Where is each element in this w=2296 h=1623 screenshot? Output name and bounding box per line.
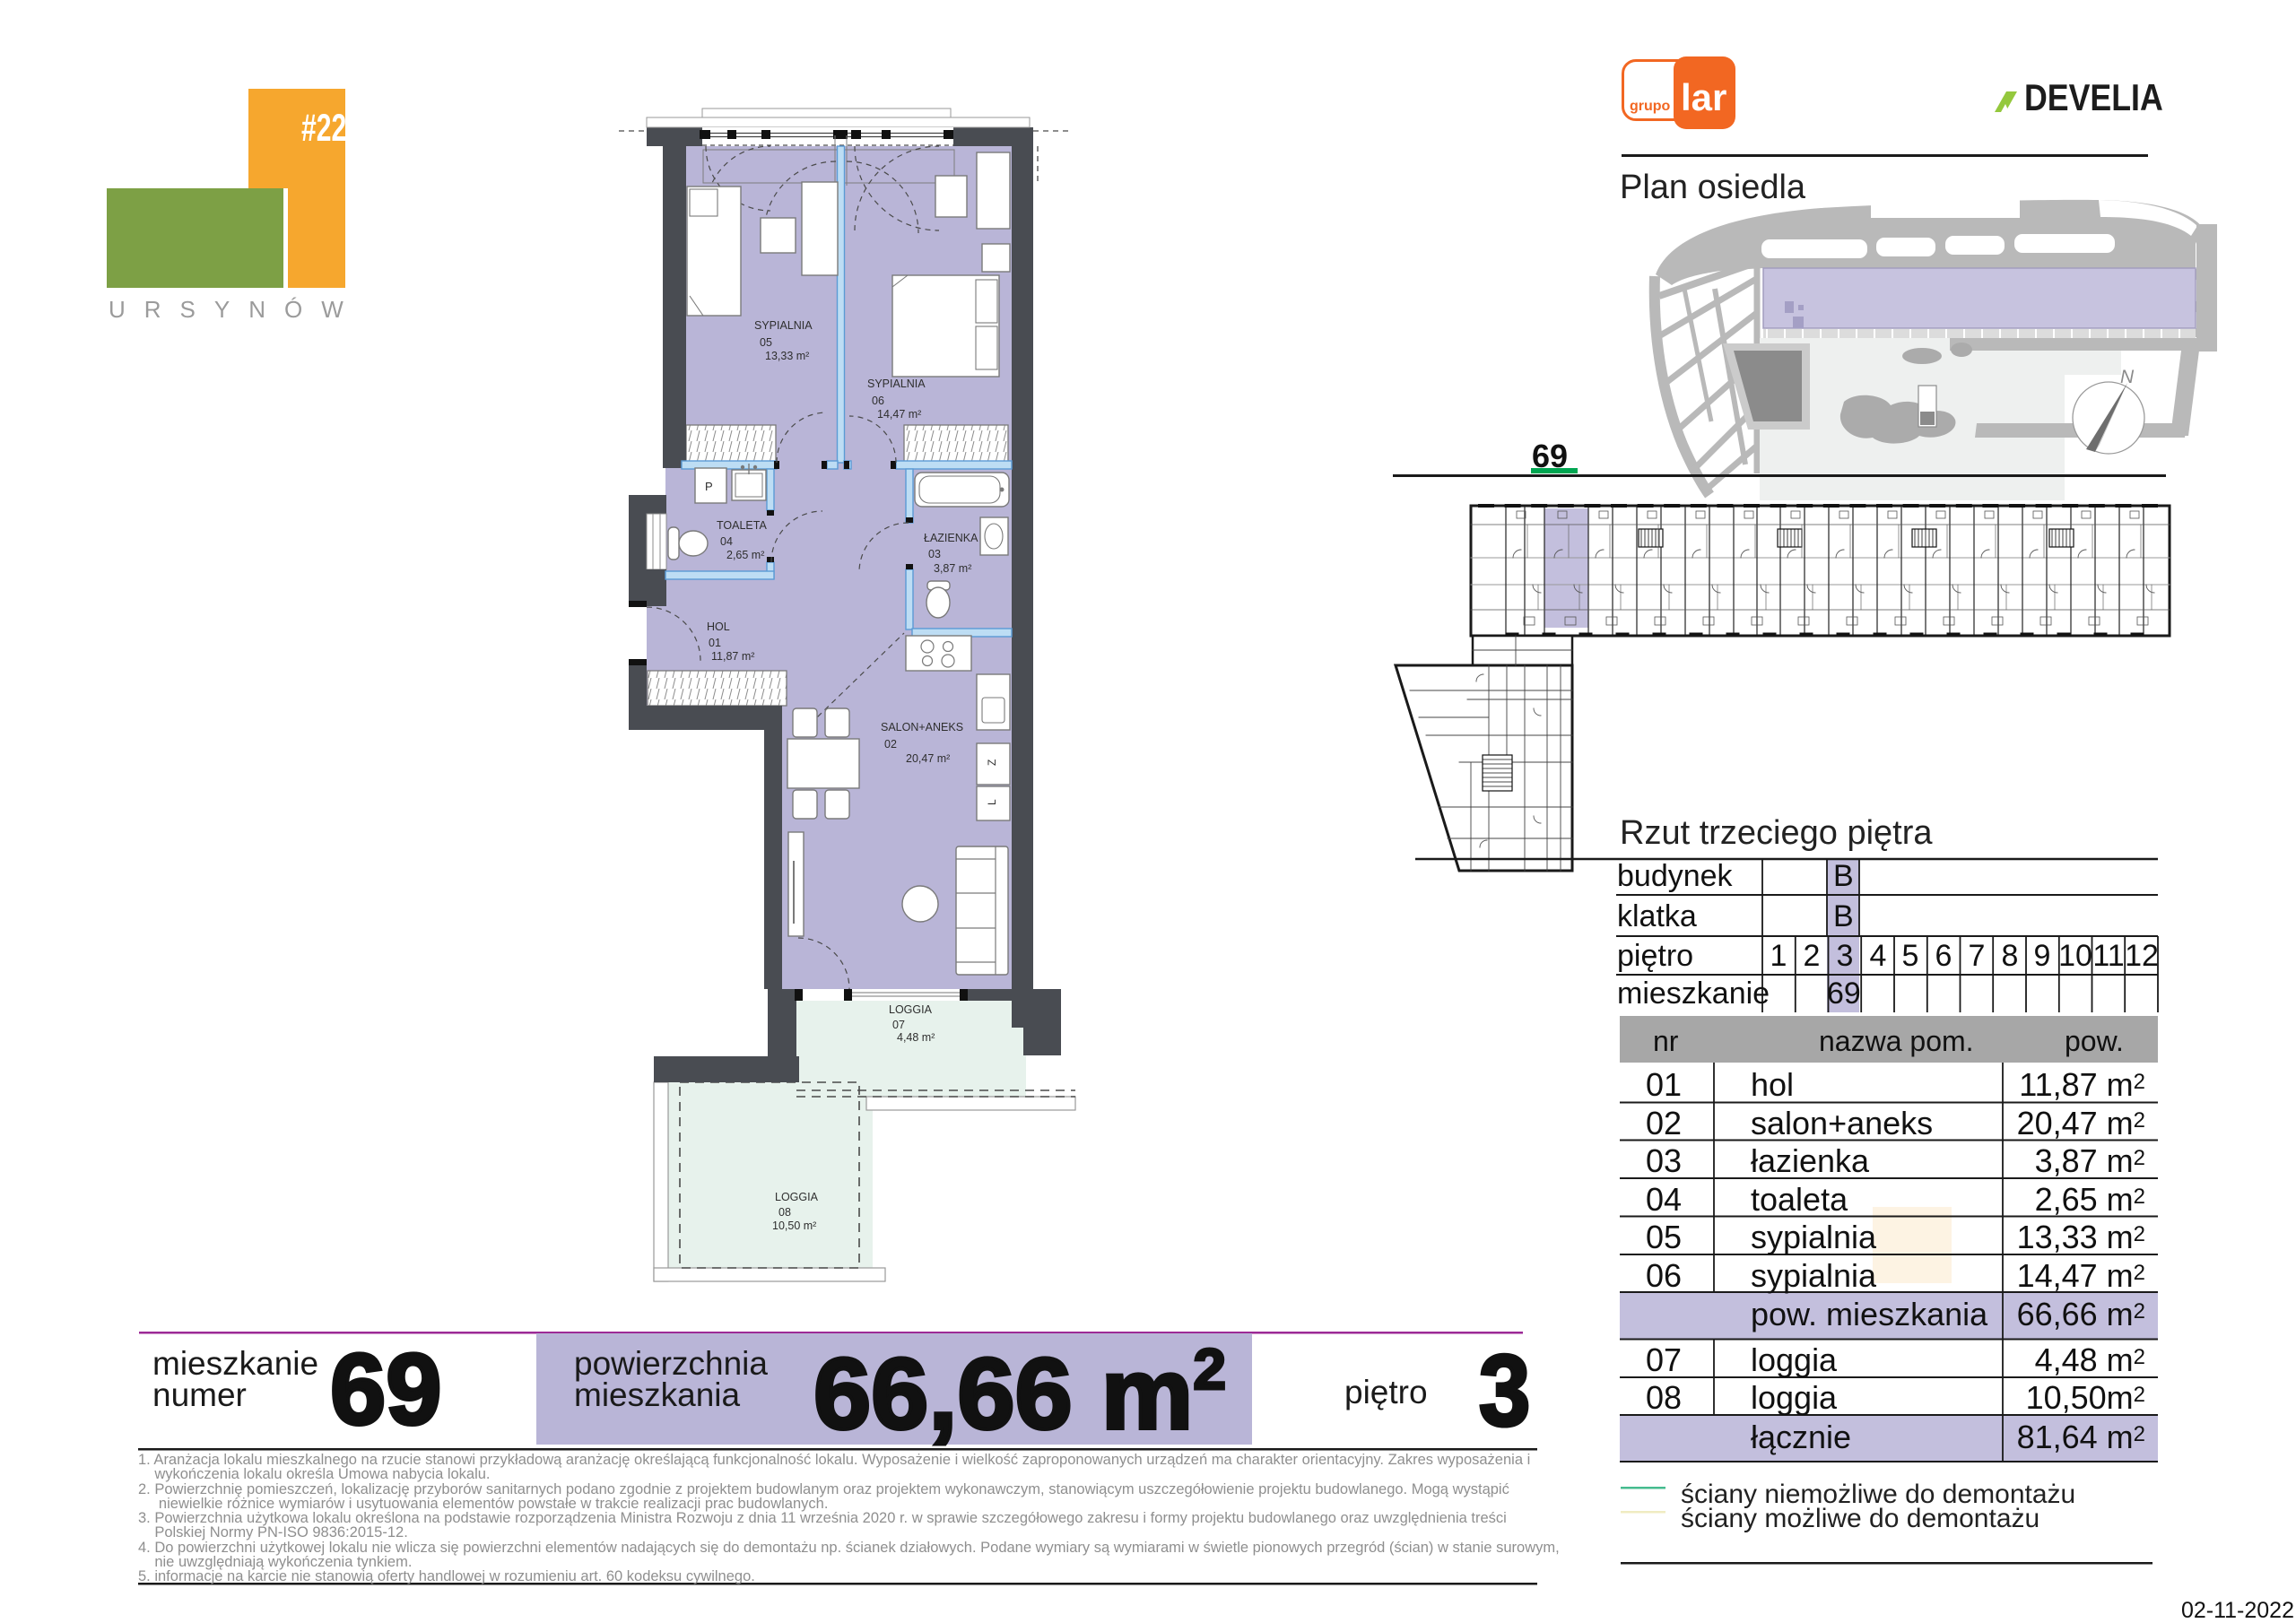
- svg-text:03: 03: [928, 548, 941, 560]
- svg-text:Z: Z: [986, 759, 998, 766]
- svg-text:14,47 m²: 14,47 m²: [877, 408, 921, 421]
- svg-text:10,50 m²: 10,50 m²: [772, 1219, 816, 1232]
- svg-text:ŁAZIENKA: ŁAZIENKA: [924, 532, 978, 544]
- svg-text:SALON+ANEKS: SALON+ANEKS: [881, 721, 963, 733]
- svg-text:N: N: [2120, 367, 2135, 387]
- svg-text:08: 08: [778, 1206, 791, 1219]
- svg-text:SYPIALNIA: SYPIALNIA: [754, 319, 813, 332]
- svg-text:SYPIALNIA: SYPIALNIA: [867, 378, 926, 390]
- svg-text:13,33 m²: 13,33 m²: [765, 350, 809, 362]
- svg-text:4,48 m²: 4,48 m²: [897, 1031, 935, 1044]
- svg-text:05: 05: [760, 336, 772, 349]
- svg-text:07: 07: [892, 1019, 905, 1031]
- svg-text:02: 02: [884, 738, 897, 751]
- svg-text:11,87 m²: 11,87 m²: [711, 650, 754, 663]
- svg-text:2,65 m²: 2,65 m²: [726, 549, 764, 561]
- svg-text:3,87 m²: 3,87 m²: [934, 562, 971, 575]
- svg-text:20,47 m²: 20,47 m²: [906, 752, 950, 765]
- svg-text:06: 06: [872, 395, 884, 407]
- svg-text:LOGGIA: LOGGIA: [889, 1003, 933, 1016]
- svg-text:L: L: [986, 799, 998, 805]
- svg-text:HOL: HOL: [707, 621, 730, 633]
- svg-text:04: 04: [720, 535, 733, 548]
- svg-text:TOALETA: TOALETA: [717, 519, 767, 532]
- svg-text:P: P: [705, 480, 713, 493]
- svg-text:01: 01: [709, 637, 721, 649]
- svg-text:LOGGIA: LOGGIA: [775, 1191, 819, 1203]
